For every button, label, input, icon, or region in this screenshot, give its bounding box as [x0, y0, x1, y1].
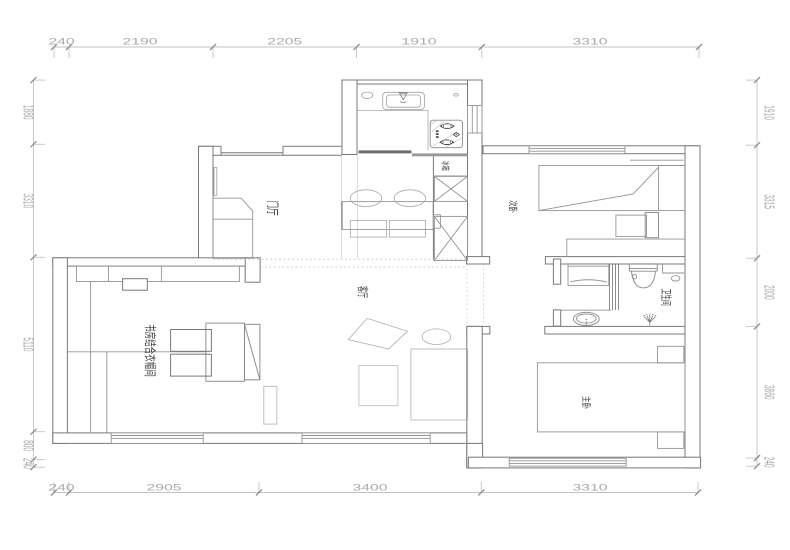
svg-text:2205: 2205	[267, 36, 302, 47]
svg-text:次卧: 次卧	[507, 200, 519, 213]
svg-text:3860: 3860	[761, 385, 777, 400]
svg-text:240: 240	[20, 458, 36, 469]
svg-text:240: 240	[48, 482, 74, 493]
svg-text:240: 240	[48, 36, 74, 47]
svg-text:5110: 5110	[20, 337, 36, 351]
svg-text:3310: 3310	[20, 193, 36, 208]
svg-text:3400: 3400	[352, 482, 387, 493]
svg-text:客厅: 客厅	[357, 286, 371, 298]
svg-text:2905: 2905	[146, 482, 181, 493]
svg-text:卫生间: 卫生间	[660, 289, 674, 306]
svg-text:冰箱: 冰箱	[440, 161, 451, 171]
svg-text:3310: 3310	[572, 36, 607, 47]
svg-text:3310: 3310	[572, 482, 607, 493]
svg-text:1910: 1910	[761, 105, 777, 120]
svg-text:2190: 2190	[122, 36, 157, 47]
svg-text:3315: 3315	[761, 194, 777, 209]
svg-text:1880: 1880	[20, 105, 36, 120]
svg-text:800: 800	[20, 440, 36, 451]
svg-text:1910: 1910	[401, 36, 436, 47]
svg-text:主卧: 主卧	[581, 396, 593, 409]
svg-text:240: 240	[761, 457, 777, 468]
svg-text:2000: 2000	[761, 285, 777, 300]
